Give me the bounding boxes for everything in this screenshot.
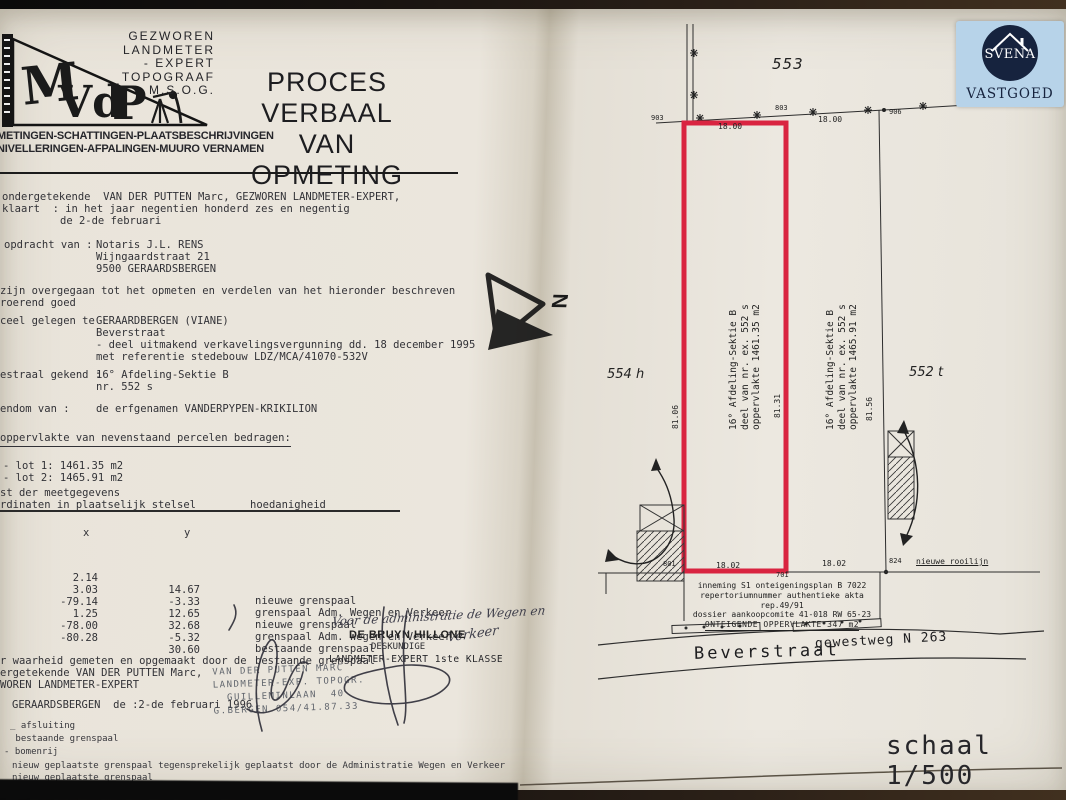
expropriation-note: inneming S1 onteigeningsplan B 7022 repe… <box>688 581 876 631</box>
lot1-description: 16° Afdeling-Sektie Bdeel van nr. ex. 55… <box>728 250 764 430</box>
lot1-line: deel van nr. ex. 552 s <box>740 250 752 430</box>
photographed-survey-document: M Vd P GEZWOREN LANDMETER - EXPERT TOPOG… <box>0 0 1066 800</box>
point-906-dot <box>882 108 886 112</box>
scale-label: schaal 1/500 <box>886 731 1066 791</box>
left-hatch-strip <box>637 505 684 581</box>
lot1-line: 16° Afdeling-Sektie B <box>728 250 740 430</box>
lot2-line: 16° Afdeling-Sektie B <box>825 250 837 430</box>
inneming-line: inneming S1 onteigeningsplan B 7022 <box>688 581 876 591</box>
parcel-label-552t: 552 t <box>909 365 943 380</box>
point-label-824: 824 <box>889 558 902 565</box>
point-label-903: 903 <box>651 115 664 122</box>
inneming-line-underlined: ONTEIGENDE OPPERVLAKTE 347 m2 <box>705 620 859 631</box>
dimension-right: 81.56 <box>866 397 874 421</box>
point-label-701: 701 <box>776 572 789 579</box>
agency-subtitle: VASTGOED <box>956 86 1064 102</box>
lot1-line: oppervlakte 1461.35 m2 <box>751 250 763 430</box>
lot2-line: deel van nr. ex. 552 s <box>837 250 849 430</box>
north-arrow-icon <box>488 275 553 350</box>
distance-label: 18.02 <box>716 562 740 570</box>
lot2-line: oppervlakte 1465.91 m2 <box>848 250 860 430</box>
point-label-801: 801 <box>663 561 676 568</box>
point-label-906: 906 <box>889 109 902 116</box>
survey-plan-drawing <box>0 9 1066 790</box>
inneming-line: dossier aankoopcomite 41-018 RW 65-23 <box>688 610 876 620</box>
distance-label: 18.00 <box>818 116 842 124</box>
signatures <box>229 605 450 731</box>
parcel-label-554h: 554 h <box>607 367 644 382</box>
dimension-left: 81.06 <box>672 405 680 429</box>
point-label-803: 803 <box>775 105 788 112</box>
distance-label: 18.00 <box>718 123 742 131</box>
lot2-description: 16° Afdeling-Sektie Bdeel van nr. ex. 55… <box>825 250 861 430</box>
agency-name: SVENA <box>956 47 1064 62</box>
page-bottom-shadow <box>0 779 518 800</box>
dimension-middle: 81.31 <box>774 394 782 418</box>
rooilijn-label: nieuwe rooilijn <box>916 558 988 566</box>
distance-label: 18.02 <box>822 560 846 568</box>
inneming-line: repertoriumnummer authentieke akta rep.4… <box>688 591 876 611</box>
paper-sheet: M Vd P GEZWOREN LANDMETER - EXPERT TOPOG… <box>0 9 1066 790</box>
parcel-label-553: 553 <box>772 55 804 73</box>
agency-watermark: SVENA VASTGOED <box>956 21 1064 107</box>
north-letter: N <box>545 293 572 308</box>
